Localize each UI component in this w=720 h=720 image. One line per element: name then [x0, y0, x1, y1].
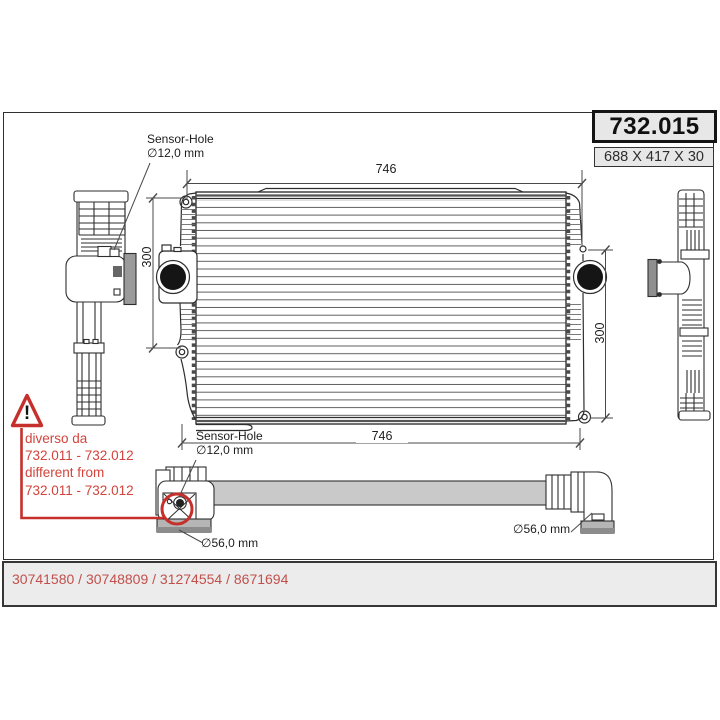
part-number: 732.015 [609, 113, 699, 141]
dim-port-diameter-left: ∅56,0 mm [201, 536, 258, 550]
sensor-hole-label-bottom: Sensor-Hole ∅12,0 mm [196, 429, 263, 457]
right-side-view [648, 190, 710, 420]
oe-numbers-bar: 30741580 / 30748809 / 31274554 / 8671694 [2, 561, 717, 607]
sensor-hole-diameter: ∅12,0 mm [147, 146, 214, 160]
sensor-hole-diameter: ∅12,0 mm [196, 443, 263, 457]
dim-height-right: 300 [593, 318, 607, 348]
warning-note: diverso da 732.011 - 732.012 different f… [25, 430, 134, 499]
sensor-hole-title: Sensor-Hole [147, 132, 214, 146]
sensor-hole-title: Sensor-Hole [196, 429, 263, 443]
catalog-page: Sensor-Hole ∅12,0 mm 746 300 300 Sensor-… [0, 0, 720, 720]
warning-line: diverso da [25, 430, 134, 447]
dim-height-left: 300 [140, 242, 154, 272]
warning-line: different from [25, 464, 134, 481]
part-dimensions: 688 X 417 X 30 [604, 149, 704, 165]
front-view [157, 189, 607, 431]
warning-line: 732.011 - 732.012 [25, 447, 134, 464]
size-box: 688 X 417 X 30 [594, 147, 714, 167]
oe-numbers: 30741580 / 30748809 / 31274554 / 8671694 [12, 571, 288, 587]
right-port [577, 264, 603, 290]
part-number-box: 732.015 [592, 110, 717, 143]
dim-width-bottom: 746 [356, 429, 408, 443]
technical-drawing [0, 0, 720, 720]
dim-width-top: 746 [362, 162, 410, 176]
warning-exclamation: ! [20, 403, 34, 425]
warning-line: 732.011 - 732.012 [25, 482, 134, 499]
sensor-boss-top [98, 247, 111, 257]
dim-port-diameter-right: ∅56,0 mm [513, 522, 570, 536]
left-port [160, 264, 186, 290]
sensor-hole-label-top: Sensor-Hole ∅12,0 mm [147, 132, 214, 160]
left-side-view [66, 191, 136, 425]
